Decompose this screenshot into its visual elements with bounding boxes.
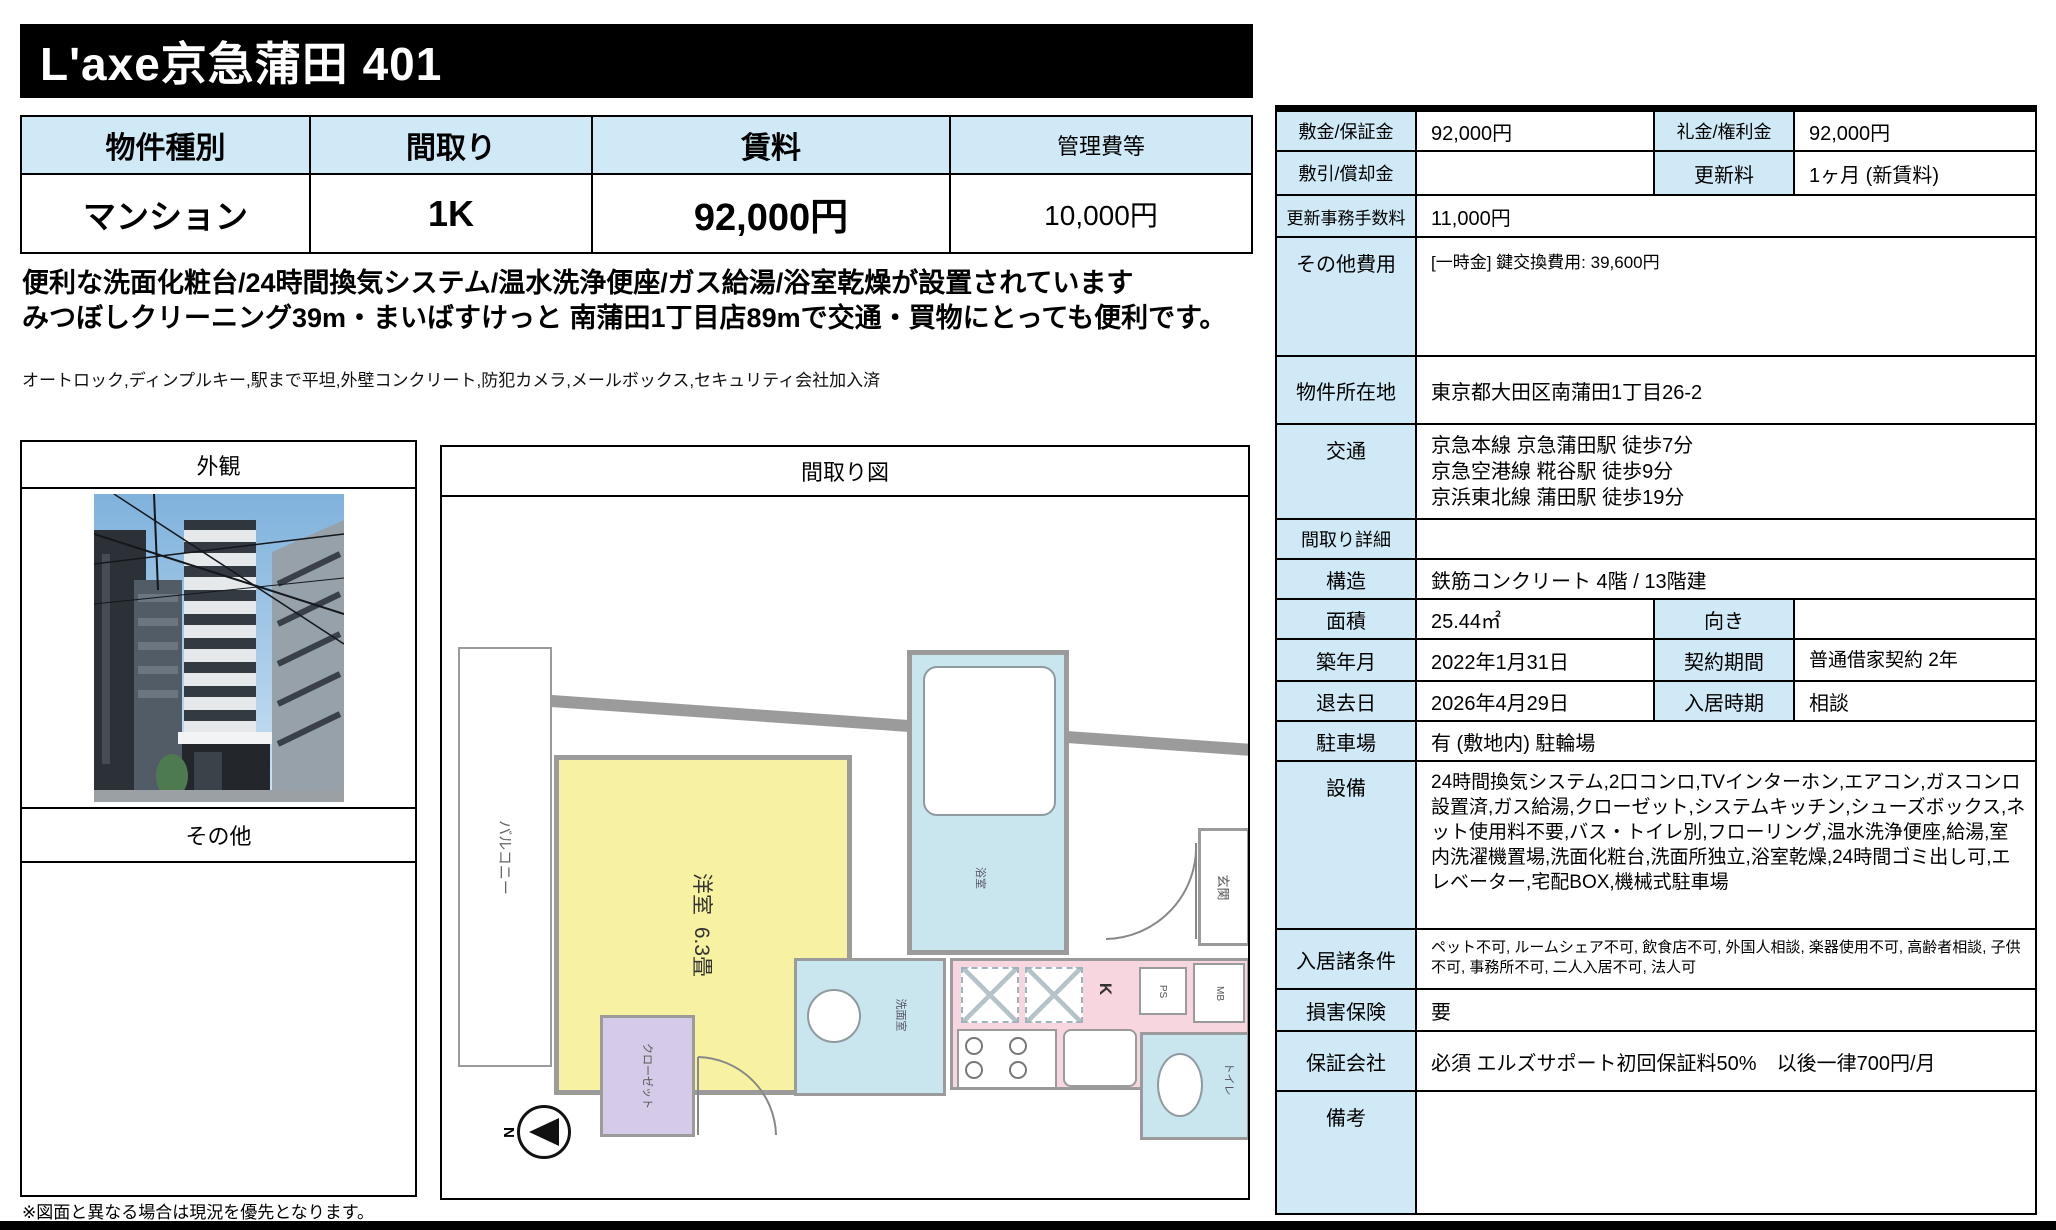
- detail-table: 敷金/保証金 92,000円 礼金/権利金 92,000円 敷引/償却金 更新料…: [1275, 105, 2037, 1215]
- entrance: 玄関: [1198, 828, 1250, 946]
- summary-header-row: 物件種別 間取り 賃料 管理費等: [22, 117, 1251, 175]
- storage-hatch-2: [1025, 967, 1083, 1023]
- movein-value: 相談: [1795, 682, 2035, 720]
- room-door-arc: [694, 1053, 780, 1139]
- row-guarantor: 保証会社 必須 エルズサポート初回保証料50% 以後一律700円/月: [1277, 1032, 2035, 1092]
- closet-label: クローゼット: [640, 1043, 656, 1109]
- summary-value-type: マンション: [22, 175, 311, 252]
- summary-value-fee: 10,000円: [951, 175, 1251, 252]
- floorplan-slanted-wall: [551, 695, 1250, 756]
- summary-header-fee: 管理費等: [951, 117, 1251, 175]
- bathroom-label: 浴室: [973, 867, 989, 889]
- bathroom: 浴室: [907, 650, 1069, 955]
- structure-value: 鉄筋コンクリート 4階 / 13階建: [1417, 560, 2035, 598]
- western-room-name: 洋室: [690, 873, 713, 915]
- washroom-label: 洗面室: [894, 999, 910, 1032]
- row-built: 築年月 2022年1月31日 契約期間 普通借家契約 2年: [1277, 640, 2035, 682]
- conditions-label: 入居諸条件: [1277, 930, 1417, 988]
- property-title: L'axe京急蒲田 401: [20, 24, 1253, 98]
- summary-value-rent: 92,000円: [593, 175, 951, 252]
- other-photo-empty: [22, 863, 415, 1131]
- conditions-value: ペット不可, ルームシェア不可, 飲食店不可, 外国人相談, 楽器使用不可, 高…: [1417, 930, 2035, 988]
- compass-circle: [517, 1105, 571, 1159]
- burner: [965, 1037, 983, 1055]
- access-line-3: 京浜東北線 蒲田駅 徒歩19分: [1431, 485, 2027, 511]
- row-remarks: 備考: [1277, 1092, 2035, 1213]
- entrance-door-arc: [1100, 837, 1200, 947]
- summary-value-row: マンション 1K 92,000円 10,000円: [22, 175, 1251, 252]
- contract-label: 契約期間: [1655, 640, 1795, 680]
- balcony-label: バルコニー: [494, 820, 515, 895]
- area-label: 面積: [1277, 600, 1417, 638]
- stove: [957, 1029, 1057, 1089]
- exterior-label: 外観: [22, 442, 415, 489]
- compass-north-label: N: [501, 1127, 518, 1138]
- western-room-label: 洋室 6.3畳: [688, 873, 718, 977]
- row-access: 交通 京急本線 京急蒲田駅 徒歩7分 京急空港線 糀谷駅 徒歩9分 京浜東北線 …: [1277, 425, 2035, 520]
- summary-table: 物件種別 間取り 賃料 管理費等 マンション 1K 92,000円 10,000…: [20, 115, 1253, 254]
- row-shikibiki: 敷引/償却金 更新料 1ヶ月 (新賃料): [1277, 152, 2035, 196]
- toilet-bowl: [1157, 1053, 1203, 1117]
- deposit-label: 敷金/保証金: [1277, 112, 1417, 150]
- row-deposit: 敷金/保証金 92,000円 礼金/権利金 92,000円: [1277, 112, 2035, 152]
- floorplan-title: 間取り図: [442, 447, 1248, 497]
- key-money-value: 92,000円: [1795, 112, 2035, 150]
- direction-label: 向き: [1655, 600, 1795, 638]
- row-moveout: 退去日 2026年4月29日 入居時期 相談: [1277, 682, 2035, 722]
- toilet-label: トイレ: [1222, 1063, 1238, 1096]
- remarks-label: 備考: [1277, 1092, 1417, 1213]
- access-value: 京急本線 京急蒲田駅 徒歩7分 京急空港線 糀谷駅 徒歩9分 京浜東北線 蒲田駅…: [1417, 425, 2035, 518]
- detail-table-top-bar: [1275, 105, 2037, 112]
- row-parking: 駐車場 有 (敷地内) 駐輪場: [1277, 722, 2035, 762]
- description-line1: 便利な洗面化粧台/24時間換気システム/温水洗浄便座/ガス給湯/浴室乾燥が設置さ…: [22, 266, 1252, 301]
- access-line-2: 京急空港線 糀谷駅 徒歩9分: [1431, 459, 2027, 485]
- exterior-photo: [22, 489, 415, 807]
- building-photo-illustration: [94, 494, 344, 802]
- guarantor-value: 必須 エルズサポート初回保証料50% 以後一律700円/月: [1417, 1032, 2035, 1090]
- compass-needle-icon: [529, 1118, 559, 1146]
- direction-value: [1795, 600, 2035, 638]
- area-value: 25.44㎡: [1417, 600, 1655, 638]
- row-renewal-fee: 更新事務手数料 11,000円: [1277, 196, 2035, 238]
- other-label: その他: [22, 807, 415, 863]
- moveout-label: 退去日: [1277, 682, 1417, 720]
- washbasin: [807, 989, 861, 1043]
- toilet: トイレ: [1140, 1032, 1250, 1140]
- row-address: 物件所在地 東京都大田区南蒲田1丁目26-2: [1277, 357, 2035, 425]
- shikibiki-label: 敷引/償却金: [1277, 152, 1417, 194]
- western-room-size: 6.3畳: [690, 927, 713, 977]
- kitchen-sink: [1063, 1029, 1137, 1087]
- insurance-value: 要: [1417, 990, 2035, 1030]
- address-label: 物件所在地: [1277, 357, 1417, 423]
- floorplan-drawing: バルコニー 洋室 6.3畳 クローゼット 浴室 洗面室: [442, 497, 1248, 1200]
- shikibiki-value: [1417, 152, 1655, 194]
- address-value: 東京都大田区南蒲田1丁目26-2: [1417, 357, 2035, 423]
- burner: [1009, 1061, 1027, 1079]
- equipment-label: 設備: [1277, 762, 1417, 928]
- row-structure: 構造 鉄筋コンクリート 4階 / 13階建: [1277, 560, 2035, 600]
- row-insurance: 損害保険 要: [1277, 990, 2035, 1032]
- bathtub: [923, 666, 1056, 816]
- footnote: ※図面と異なる場合は現況を優先となります。: [22, 1198, 374, 1223]
- row-conditions: 入居諸条件 ペット不可, ルームシェア不可, 飲食店不可, 外国人相談, 楽器使…: [1277, 930, 2035, 990]
- parking-value: 有 (敷地内) 駐輪場: [1417, 722, 2035, 760]
- structure-label: 構造: [1277, 560, 1417, 598]
- row-equipment: 設備 24時間換気システム,2口コンロ,TVインターホン,エアコン,ガスコンロ設…: [1277, 762, 2035, 930]
- burner: [965, 1061, 983, 1079]
- insurance-label: 損害保険: [1277, 990, 1417, 1030]
- movein-label: 入居時期: [1655, 682, 1795, 720]
- remarks-value: [1417, 1092, 2035, 1213]
- features-line: オートロック,ディンプルキー,駅まで平坦,外壁コンクリート,防犯カメラ,メールボ…: [22, 366, 1252, 391]
- moveout-value: 2026年4月29日: [1417, 682, 1655, 720]
- guarantor-label: 保証会社: [1277, 1032, 1417, 1090]
- description-line2: みつぼしクリーニング39m・まいばすけっと 南蒲田1丁目店89mで交通・買物にと…: [22, 301, 1252, 336]
- renewal-fee-label: 更新事務手数料: [1277, 196, 1417, 236]
- summary-header-type: 物件種別: [22, 117, 311, 175]
- burner: [1009, 1037, 1027, 1055]
- washroom: 洗面室: [794, 958, 946, 1096]
- summary-header-layout: 間取り: [311, 117, 593, 175]
- madori-detail-label: 間取り詳細: [1277, 520, 1417, 558]
- renewal-fee-value: 11,000円: [1417, 196, 2035, 236]
- contract-value: 普通借家契約 2年: [1795, 640, 2035, 680]
- other-costs-value: [一時金] 鍵交換費用: 39,600円: [1417, 238, 2035, 355]
- row-other-costs: その他費用 [一時金] 鍵交換費用: 39,600円: [1277, 238, 2035, 357]
- storage-hatch-1: [961, 967, 1019, 1023]
- compass: N: [504, 1105, 571, 1159]
- access-label: 交通: [1277, 425, 1417, 518]
- built-label: 築年月: [1277, 640, 1417, 680]
- entrance-label: 玄関: [1214, 874, 1233, 900]
- ps-label: PS: [1158, 984, 1169, 997]
- equipment-value: 24時間換気システム,2口コンロ,TVインターホン,エアコン,ガスコンロ設置済,…: [1417, 762, 2035, 928]
- other-costs-label: その他費用: [1277, 238, 1417, 355]
- closet: クローゼット: [600, 1015, 695, 1137]
- bottom-divider-bar: [0, 1221, 2056, 1230]
- ps-box: PS: [1139, 967, 1187, 1015]
- renewal-label: 更新料: [1655, 152, 1795, 194]
- parking-label: 駐車場: [1277, 722, 1417, 760]
- row-madori-detail: 間取り詳細: [1277, 520, 2035, 560]
- deposit-value: 92,000円: [1417, 112, 1655, 150]
- key-money-label: 礼金/権利金: [1655, 112, 1795, 150]
- mb-box: MB: [1193, 963, 1245, 1023]
- balcony: バルコニー: [458, 647, 552, 1067]
- kitchen-label: K: [1095, 983, 1115, 995]
- row-area: 面積 25.44㎡ 向き: [1277, 600, 2035, 640]
- access-line-1: 京急本線 京急蒲田駅 徒歩7分: [1431, 433, 2027, 459]
- floorplan-box: 間取り図 バルコニー 洋室 6.3畳 クローゼット 浴室: [440, 445, 1250, 1200]
- summary-value-layout: 1K: [311, 175, 593, 252]
- madori-detail-value: [1417, 520, 2035, 558]
- renewal-value: 1ヶ月 (新賃料): [1795, 152, 2035, 194]
- photo-box: 外観: [20, 440, 417, 1197]
- mb-label: MB: [1214, 986, 1225, 1001]
- built-value: 2022年1月31日: [1417, 640, 1655, 680]
- description-block: 便利な洗面化粧台/24時間換気システム/温水洗浄便座/ガス給湯/浴室乾燥が設置さ…: [22, 266, 1252, 336]
- summary-header-rent: 賃料: [593, 117, 951, 175]
